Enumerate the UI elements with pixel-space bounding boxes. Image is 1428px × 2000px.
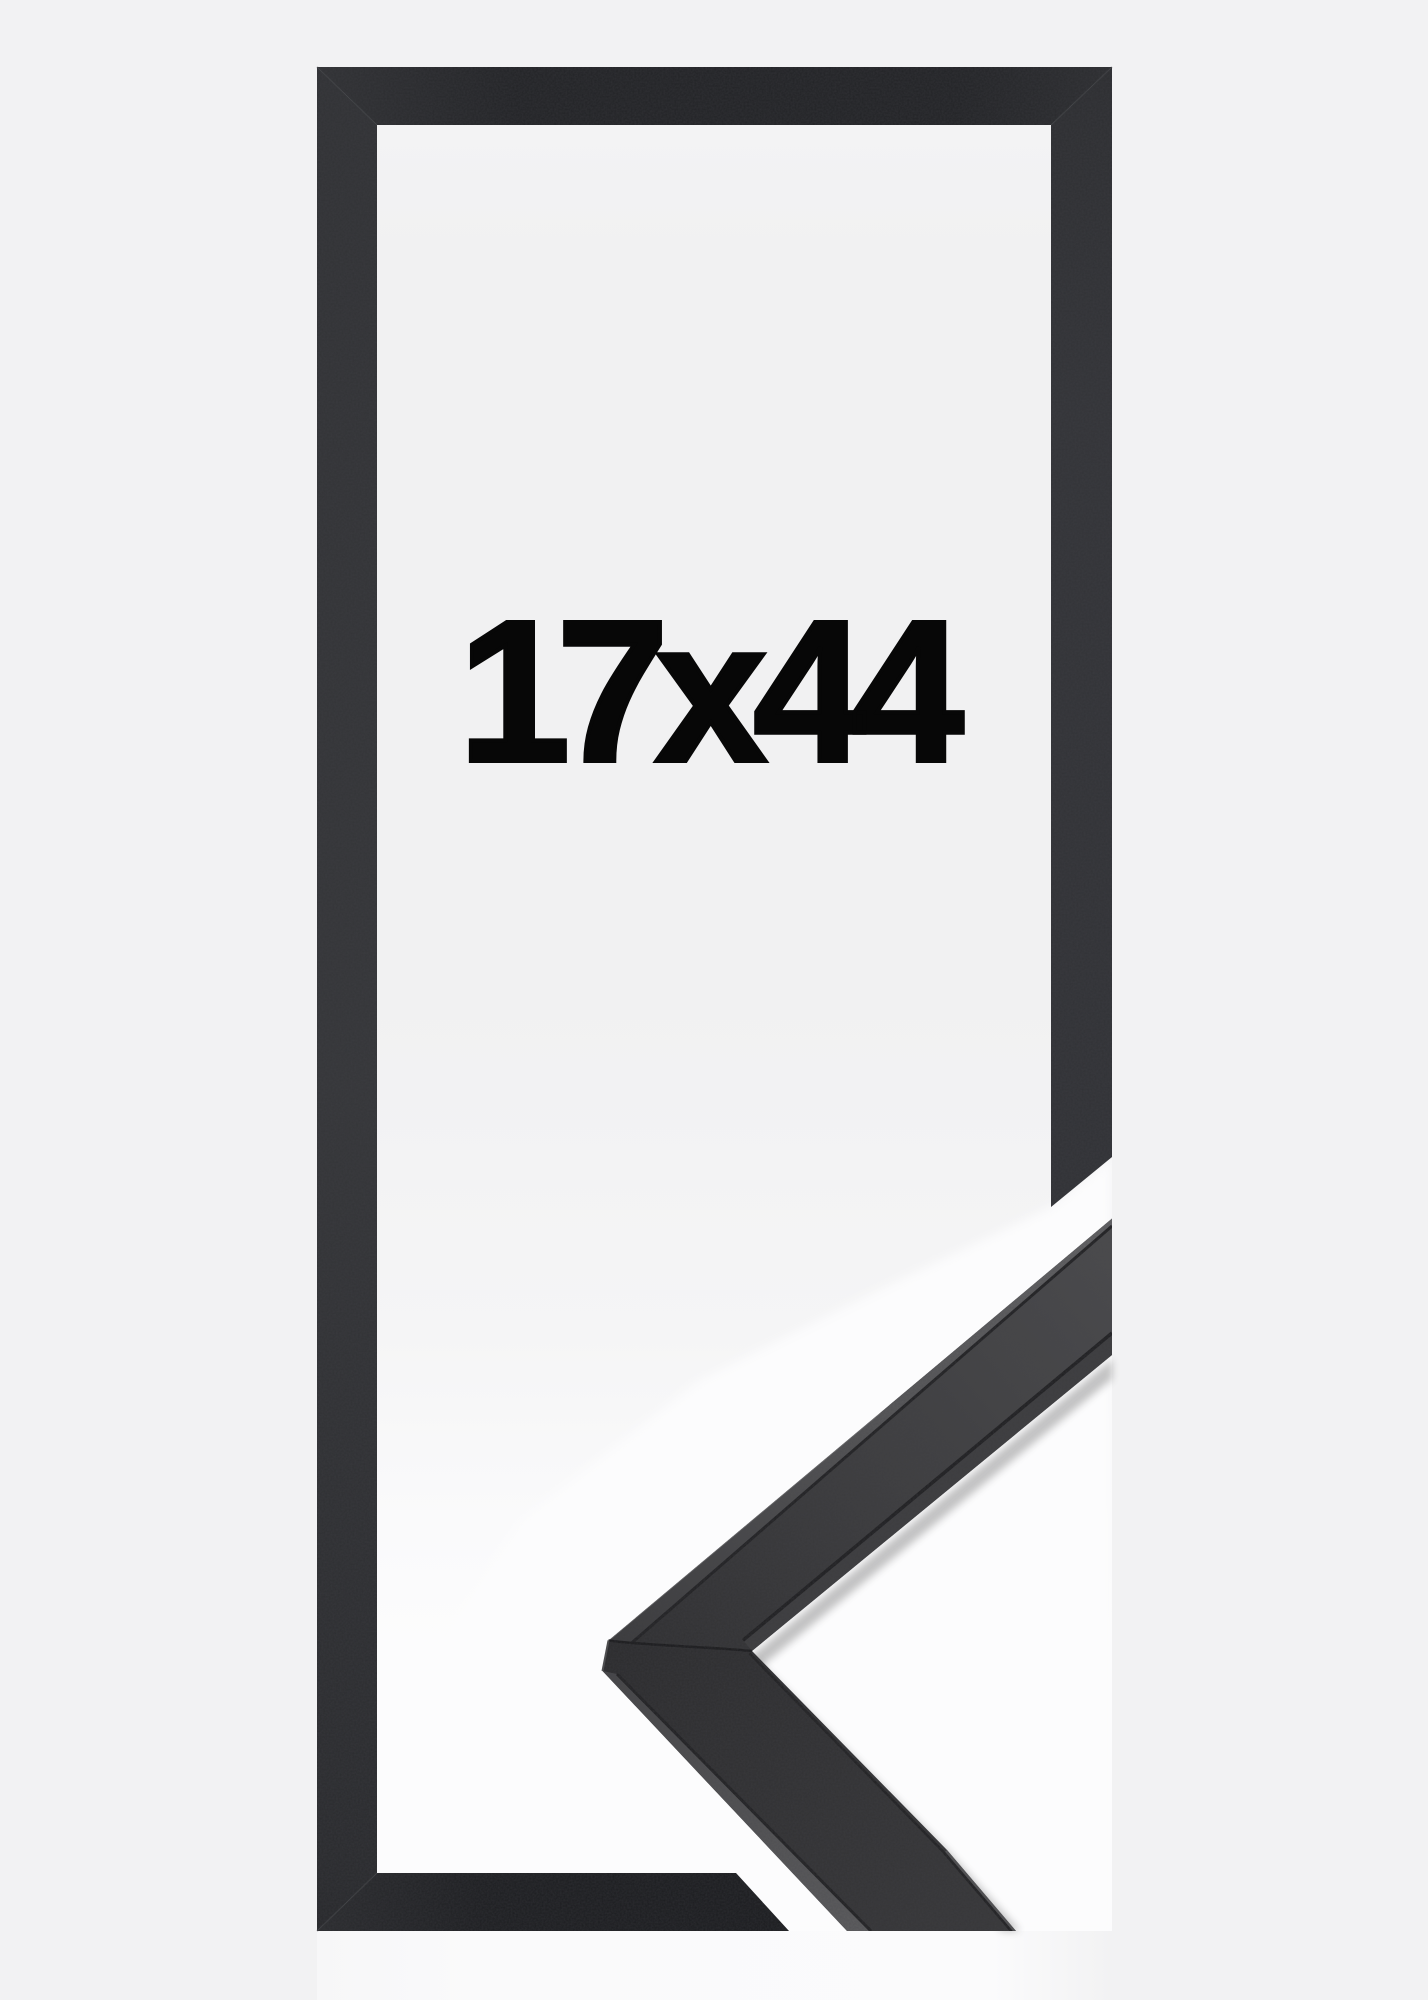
- svg-text:17x44: 17x44: [458, 578, 963, 804]
